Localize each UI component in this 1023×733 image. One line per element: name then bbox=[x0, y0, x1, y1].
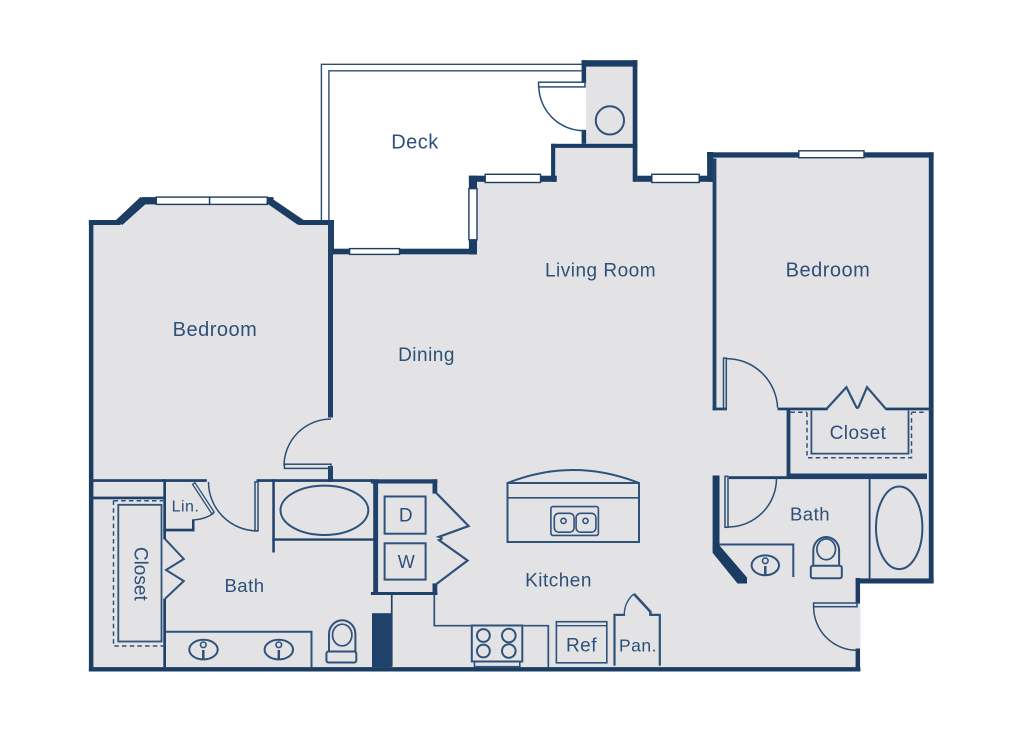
svg-text:Bedroom: Bedroom bbox=[786, 260, 871, 282]
svg-text:Lin.: Lin. bbox=[172, 499, 200, 516]
svg-text:Living Room: Living Room bbox=[545, 261, 656, 282]
svg-text:Closet: Closet bbox=[130, 547, 151, 602]
svg-text:Ref: Ref bbox=[566, 636, 597, 657]
svg-text:Pan.: Pan. bbox=[619, 636, 657, 656]
svg-text:W: W bbox=[398, 552, 416, 572]
svg-text:Kitchen: Kitchen bbox=[525, 571, 592, 592]
svg-text:D: D bbox=[399, 505, 413, 526]
svg-text:Bath: Bath bbox=[224, 575, 264, 596]
svg-text:Dining: Dining bbox=[398, 345, 455, 366]
svg-text:Closet: Closet bbox=[830, 423, 887, 444]
svg-text:Bedroom: Bedroom bbox=[173, 319, 258, 341]
svg-text:Deck: Deck bbox=[391, 132, 439, 154]
svg-text:Bath: Bath bbox=[790, 504, 830, 525]
